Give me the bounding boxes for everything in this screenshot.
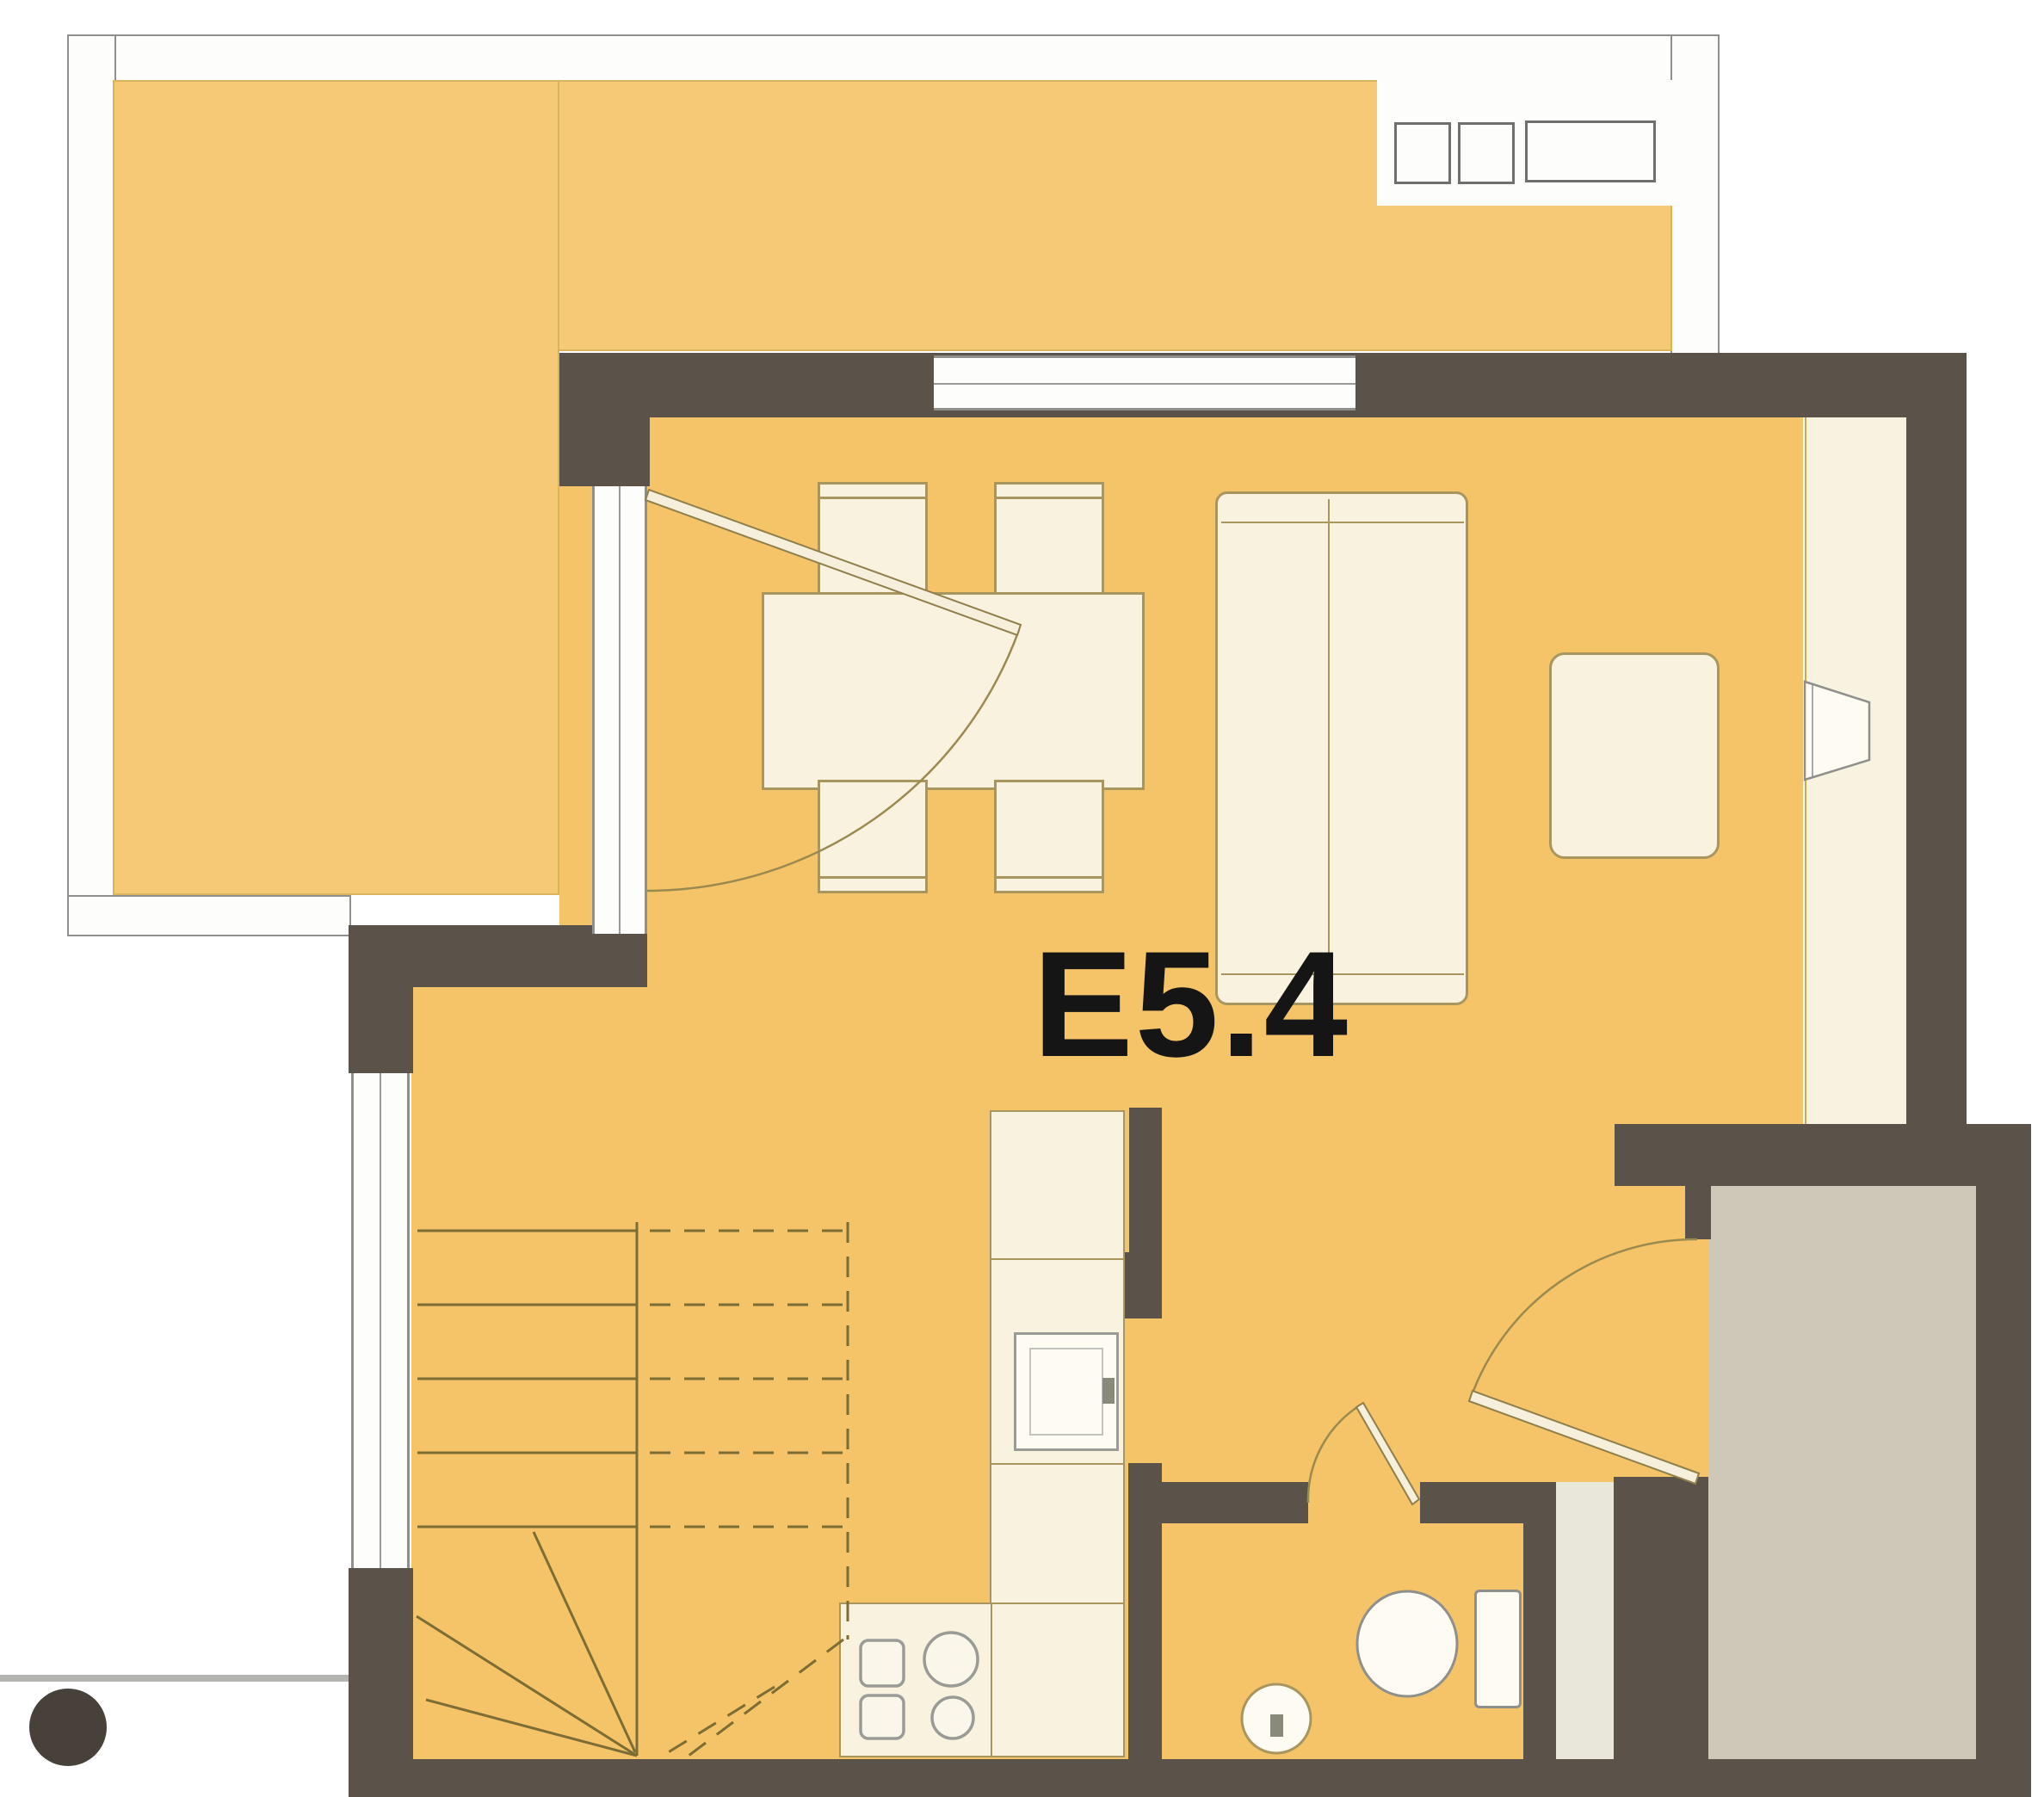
bathroom-door-swing bbox=[1308, 1403, 1419, 1504]
unit-label: E5.4 bbox=[1033, 929, 1349, 1080]
entry-door-swing bbox=[1469, 1239, 1699, 1484]
terrace-door-swing bbox=[645, 490, 1021, 891]
cooktop-burners bbox=[861, 1633, 978, 1738]
floor-plan: E5.4 bbox=[0, 0, 2044, 1797]
toilet-bowl bbox=[1357, 1591, 1457, 1696]
bathroom-washbasin bbox=[1242, 1684, 1311, 1753]
wall-basin bbox=[1805, 682, 1869, 780]
staircase-dashed-flight bbox=[650, 1222, 848, 1756]
line-art-layer bbox=[0, 0, 2044, 1797]
staircase-solid-flight bbox=[417, 1222, 637, 1756]
